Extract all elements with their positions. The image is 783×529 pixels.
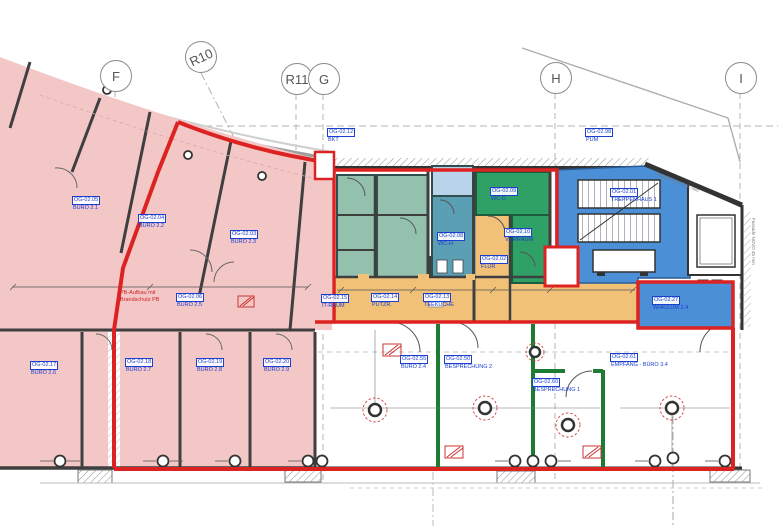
room-id: OG-02.20 (263, 358, 291, 367)
room-label-wc-d: OG-02.09WC-D (490, 187, 518, 203)
room-id: OG-02.60 (532, 378, 560, 387)
grid-marker-h-label: H (551, 71, 560, 86)
room-label-buero-2-3: OG-02.03BÜRO 2.3 (230, 230, 258, 246)
fire-protection-note: PB-Aufbau mit Brandschutz PB (120, 290, 159, 303)
room-label-it-raum: OG-02.15IT-RAUM (321, 294, 349, 310)
room-id: OG-02.06 (176, 293, 204, 302)
grid-marker-h: H (540, 62, 572, 94)
room-label-buero-2-8: OG-02.19BÜRO 2.8 (196, 358, 224, 374)
grid-marker-g: G (308, 63, 340, 95)
fire-note-line1: PB-Aufbau mit (120, 290, 159, 297)
pink-office-zone (0, 57, 332, 468)
meeting-area (315, 322, 742, 468)
room-name: WC-D (490, 196, 506, 203)
room-id: OG-02.19 (196, 358, 224, 367)
room-name: PUTZR. (371, 302, 392, 309)
room-label-whk: OG-02.27WHK/LUM 2.4 (652, 296, 688, 312)
room-id: OG-02.04 (138, 214, 166, 223)
room-label-vorraum: OG-02.10VORRAUM (504, 228, 533, 244)
room-name: BÜRO 2.5 (176, 302, 202, 309)
room-label-empfang: OG-02.61EMPFANG - BÜRO 3.4 (610, 353, 668, 369)
room-label-buero-2-5: OG-02.06BÜRO 2.5 (176, 293, 204, 309)
room-name: BESPRECHUNG 1 (532, 387, 580, 394)
room-label-buero-2-7: OG-02.18BÜRO 2.7 (125, 358, 153, 374)
room-id: OG-02.02 (480, 255, 508, 264)
grid-marker-r10-label: R10 (187, 45, 215, 69)
room-id: OG-02.15 (321, 294, 349, 303)
stair-landing (593, 250, 655, 272)
room-label-besprechung-1: OG-02.60BESPRECHUNG 1 (532, 378, 580, 394)
room-label-putzraum: OG-02.14PUTZR. (371, 293, 399, 309)
grid-marker-r11-label: R11 (286, 72, 309, 87)
room-teal-2 (377, 175, 428, 277)
room-name: WHK/LUM 2.4 (652, 305, 688, 312)
room-id: OG-02.03 (230, 230, 258, 239)
room-name: TREPPENHAUS 1 (610, 197, 657, 204)
stair-flight-lower (578, 214, 660, 242)
room-label-buero-2-1: OG-02.05BÜRO 2.1 (72, 196, 100, 212)
room-name: PUM (585, 137, 598, 144)
room-name: BÜRO 2.6 (30, 370, 56, 377)
room-name: BESPRECHUNG 2 (444, 364, 492, 371)
room-id: OG-02.61 (610, 353, 638, 362)
room-id: OG-02.55 (400, 355, 428, 364)
grid-marker-i-label: I (739, 71, 743, 86)
room-name: BÜRO 2.3 (230, 239, 256, 246)
room-name: WC-H (437, 241, 453, 248)
room-id: OG-02.17 (30, 361, 58, 370)
room-label-teekueche: OG-02.13TEEKÜCHE (423, 293, 454, 309)
room-teal-1 (337, 175, 375, 277)
room-label-flur: OG-02.02FLUR (480, 255, 508, 271)
grid-marker-g-label: G (319, 72, 329, 87)
room-name: BÜRO 2.8 (196, 367, 222, 374)
facade-note-vertical: Fassade NOVO 45 mm (751, 218, 756, 265)
room-id: OG-02.13 (423, 293, 451, 302)
room-name: EMPFANG - BÜRO 3.4 (610, 362, 668, 369)
room-name: BKT (327, 137, 339, 144)
room-id: OG-02.01 (610, 188, 638, 197)
room-label-buero-2-2: OG-02.04BÜRO 2.2 (138, 214, 166, 230)
floor-plan: Fassade NOVO 45 mm Fassade NOVO 45 mm (0, 0, 783, 529)
room-id: OG-02.05 (72, 196, 100, 205)
room-id: OG-02.18 (125, 358, 153, 367)
room-label-treppenhaus: OG-02.01TREPPENHAUS 1 (610, 188, 657, 204)
room-name: BÜRO 2.2 (138, 223, 164, 230)
room-label-bkt: OG-02.12BKT (327, 128, 355, 144)
grid-marker-f: F (100, 60, 132, 92)
room-id: OG-02.14 (371, 293, 399, 302)
facade-pads (40, 470, 760, 483)
room-name: TEEKÜCHE (423, 302, 454, 309)
grid-marker-i: I (725, 62, 757, 94)
room-label-besprechung-2: OG-02.50BESPRECHUNG 2 (444, 355, 492, 371)
room-name: IT-RAUM (321, 303, 345, 310)
room-id: OG-02.98 (585, 128, 613, 137)
room-label-buero-2-4: OG-02.55BÜRO 2.4 (400, 355, 428, 371)
room-name: BÜRO 2.9 (263, 367, 289, 374)
room-label-buero-2-9: OG-02.20BÜRO 2.9 (263, 358, 291, 374)
room-label-pum: OG-02.98PUM (585, 128, 613, 144)
room-id: OG-02.08 (437, 232, 465, 241)
room-name: FLUR (480, 264, 495, 271)
room-id: OG-02.12 (327, 128, 355, 137)
room-id: OG-02.27 (652, 296, 680, 305)
room-name: BÜRO 2.1 (72, 205, 98, 212)
room-label-wc-h: OG-02.08WC-H (437, 232, 465, 248)
room-name: BÜRO 2.4 (400, 364, 426, 371)
room-id: OG-02.10 (504, 228, 532, 237)
room-id: OG-02.50 (444, 355, 472, 364)
fire-note-line2: Brandschutz PB (120, 297, 159, 304)
room-name: VORRAUM (504, 237, 533, 244)
room-id: OG-02.09 (490, 187, 518, 196)
grid-marker-f-label: F (112, 69, 120, 84)
room-name: BÜRO 2.7 (125, 367, 151, 374)
room-label-buero-2-6: OG-02.17BÜRO 2.6 (30, 361, 58, 377)
